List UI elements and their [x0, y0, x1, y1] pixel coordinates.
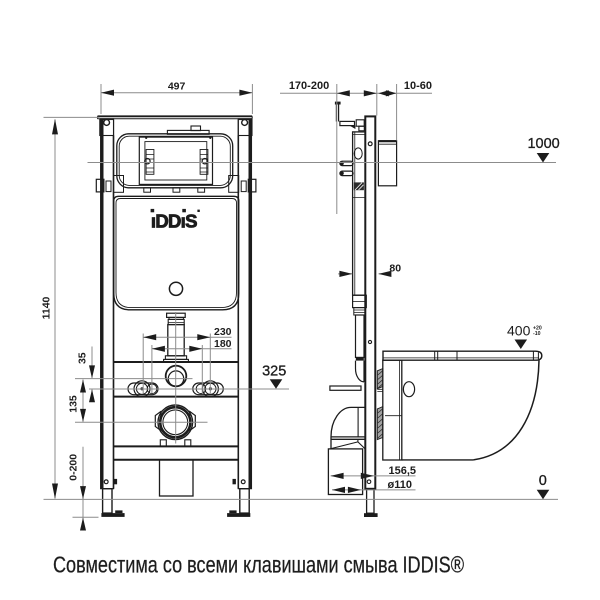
svg-text:ıDDıS: ıDDıS [151, 210, 197, 231]
svg-text:0-200: 0-200 [68, 454, 80, 481]
svg-text:35: 35 [77, 352, 89, 364]
svg-text:ø110: ø110 [388, 479, 412, 491]
svg-text:497: 497 [168, 80, 186, 92]
svg-text:180: 180 [214, 338, 232, 350]
svg-text:156,5: 156,5 [389, 465, 417, 477]
svg-text:135: 135 [67, 395, 79, 413]
svg-text:0: 0 [539, 473, 547, 489]
svg-text:Совместима со всеми клавишами: Совместима со всеми клавишами смыва IDDI… [53, 552, 464, 578]
svg-text:1000: 1000 [527, 136, 559, 152]
svg-text:80: 80 [389, 262, 401, 274]
svg-text:170-200: 170-200 [289, 80, 329, 92]
svg-text:325: 325 [262, 363, 286, 379]
svg-text:-10: -10 [533, 331, 541, 337]
svg-text:10-60: 10-60 [404, 80, 432, 92]
svg-text:1140: 1140 [40, 296, 52, 319]
svg-text:230: 230 [214, 326, 232, 338]
svg-text:400: 400 [507, 323, 531, 339]
